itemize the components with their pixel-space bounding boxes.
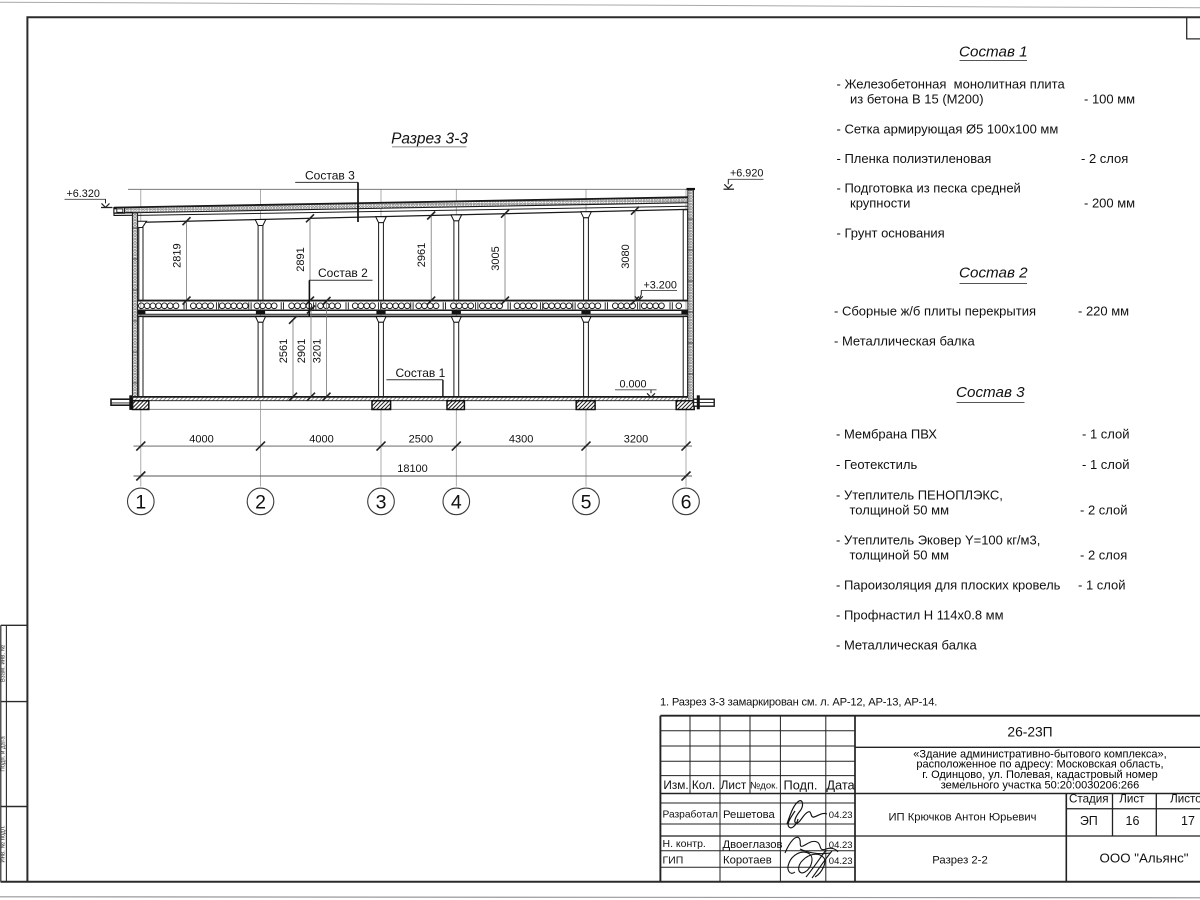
svg-text:- 2 слой: - 2 слой [1080, 503, 1128, 518]
svg-text:крупности: крупности [850, 196, 910, 211]
svg-text:Н. контр.: Н. контр. [663, 838, 706, 850]
svg-text:Стадия: Стадия [1069, 793, 1109, 806]
svg-text:3201: 3201 [311, 339, 323, 363]
svg-text:- Грунт основания: - Грунт основания [837, 226, 945, 241]
svg-text:3005: 3005 [490, 246, 502, 270]
svg-text:2: 2 [255, 491, 266, 513]
svg-text:+6.920: +6.920 [730, 168, 763, 180]
svg-text:6: 6 [681, 491, 692, 513]
svg-text:04.23: 04.23 [829, 856, 853, 867]
svg-text:5: 5 [581, 491, 592, 513]
svg-text:- Металлическая балка: - Металлическая балка [836, 638, 977, 653]
svg-text:Лист: Лист [1119, 793, 1145, 806]
svg-text:ООО "Альянс": ООО "Альянс" [1100, 850, 1189, 865]
svg-text:земельного участка 50:20:00302: земельного участка 50:20:0030206:266 [941, 779, 1140, 791]
svg-text:- Утеплитель Эковер Y=100 кг/м: - Утеплитель Эковер Y=100 кг/м3, [836, 533, 1040, 548]
svg-text:Дата: Дата [826, 777, 855, 792]
svg-text:- 1 слой: - 1 слой [1082, 457, 1130, 472]
svg-text:- Пароизоляция для плоских кро: - Пароизоляция для плоских кровель [836, 578, 1061, 593]
svg-text:2901: 2901 [296, 339, 308, 363]
svg-text:0.000: 0.000 [620, 379, 647, 391]
svg-text:- Сборные ж/б плиты перекрытия: - Сборные ж/б плиты перекрытия [834, 304, 1036, 319]
svg-text:Изм.: Изм. [663, 778, 688, 792]
svg-text:26-23П: 26-23П [1007, 724, 1052, 739]
svg-text:- 100 мм: - 100 мм [1084, 92, 1135, 107]
svg-text:Состав 2: Состав 2 [959, 265, 1028, 282]
svg-text:- Мембрана ПВХ: - Мембрана ПВХ [836, 427, 937, 442]
svg-text:2891: 2891 [295, 247, 307, 271]
svg-text:2561: 2561 [278, 339, 290, 363]
svg-text:4300: 4300 [509, 434, 533, 446]
svg-text:Разрез 3-3: Разрез 3-3 [391, 131, 468, 148]
svg-text:18100: 18100 [397, 463, 428, 475]
svg-text:Подп. и дата: Подп. и дата [0, 736, 6, 772]
svg-text:Состав 2: Состав 2 [318, 266, 368, 280]
svg-text:Состав 1: Состав 1 [959, 44, 1028, 61]
svg-text:- 2 слоя: - 2 слоя [1081, 151, 1128, 166]
svg-text:2500: 2500 [409, 434, 433, 446]
svg-text:2819: 2819 [171, 243, 183, 267]
svg-text:3200: 3200 [624, 434, 648, 446]
svg-text:- 220 мм: - 220 мм [1078, 304, 1129, 319]
svg-text:1: 1 [135, 491, 146, 513]
svg-text:04.23: 04.23 [829, 840, 853, 851]
svg-text:Кол.: Кол. [692, 778, 715, 792]
svg-text:2961: 2961 [416, 243, 428, 267]
svg-text:толщиной 50 мм: толщиной 50 мм [850, 548, 950, 563]
svg-text:16: 16 [1126, 814, 1140, 828]
svg-text:17: 17 [1181, 814, 1195, 828]
svg-text:Разработал: Разработал [663, 809, 719, 821]
svg-text:Решетова: Решетова [723, 809, 775, 821]
svg-text:- 1 слой: - 1 слой [1078, 578, 1126, 593]
svg-text:- 1 слой: - 1 слой [1082, 427, 1130, 442]
svg-text:толщиной 50 мм: толщиной 50 мм [850, 503, 950, 518]
svg-text:1. Разрез 3-3 замаркирован см.: 1. Разрез 3-3 замаркирован см. л. АР-12,… [660, 697, 937, 709]
svg-text:Взам. инв. №: Взам. инв. № [0, 645, 6, 682]
svg-text:- Подготовка из песка средней: - Подготовка из песка средней [837, 181, 1021, 196]
svg-text:Состав 1: Состав 1 [396, 366, 446, 380]
svg-text:Листов: Листов [1170, 793, 1200, 806]
svg-text:- 200 мм: - 200 мм [1084, 196, 1135, 211]
svg-text:+3.200: +3.200 [644, 280, 677, 292]
svg-text:из бетона В 15 (М200): из бетона В 15 (М200) [850, 92, 984, 107]
svg-text:4000: 4000 [309, 434, 333, 446]
svg-text:Состав 3: Состав 3 [956, 384, 1025, 401]
svg-text:ИП Крючков Антон Юрьевич: ИП Крючков Антон Юрьевич [889, 812, 1037, 824]
svg-text:Коротаев: Коротаев [723, 854, 772, 866]
svg-text:Состав 3: Состав 3 [305, 168, 355, 182]
svg-text:04.23: 04.23 [829, 810, 853, 821]
svg-text:- Геотекстиль: - Геотекстиль [836, 457, 917, 472]
svg-text:- 2 слоя: - 2 слоя [1080, 548, 1127, 563]
svg-text:- Металлическая балка: - Металлическая балка [834, 334, 975, 349]
svg-text:№док.: №док. [750, 781, 778, 792]
svg-text:3080: 3080 [620, 244, 632, 268]
svg-text:Подп.: Подп. [784, 777, 818, 792]
svg-text:ЭП: ЭП [1080, 814, 1098, 828]
svg-text:Инв. № подл.: Инв. № подл. [0, 825, 6, 863]
svg-text:4: 4 [451, 491, 462, 513]
svg-text:ГИП: ГИП [663, 854, 684, 866]
svg-text:Лист: Лист [721, 778, 747, 792]
svg-text:- Профнастил Н 114х0.8 мм: - Профнастил Н 114х0.8 мм [836, 608, 1004, 623]
svg-text:3: 3 [376, 491, 387, 513]
svg-text:- Пленка полиэтиленовая: - Пленка полиэтиленовая [837, 151, 992, 166]
svg-text:Двоеглазов: Двоеглазов [723, 839, 783, 851]
svg-text:+6.320: +6.320 [67, 188, 100, 200]
svg-text:Разрез 2-2: Разрез 2-2 [932, 855, 987, 867]
svg-text:- Утеплитель ПЕНОПЛЭКС,: - Утеплитель ПЕНОПЛЭКС, [836, 488, 1003, 503]
svg-text:4000: 4000 [189, 434, 213, 446]
svg-text:- Сетка армирующая Ø5 100х100: - Сетка армирующая Ø5 100х100 мм [837, 122, 1059, 137]
svg-text:- Железобетонная монолитная п: - Железобетонная монолитная плита [837, 77, 1066, 92]
